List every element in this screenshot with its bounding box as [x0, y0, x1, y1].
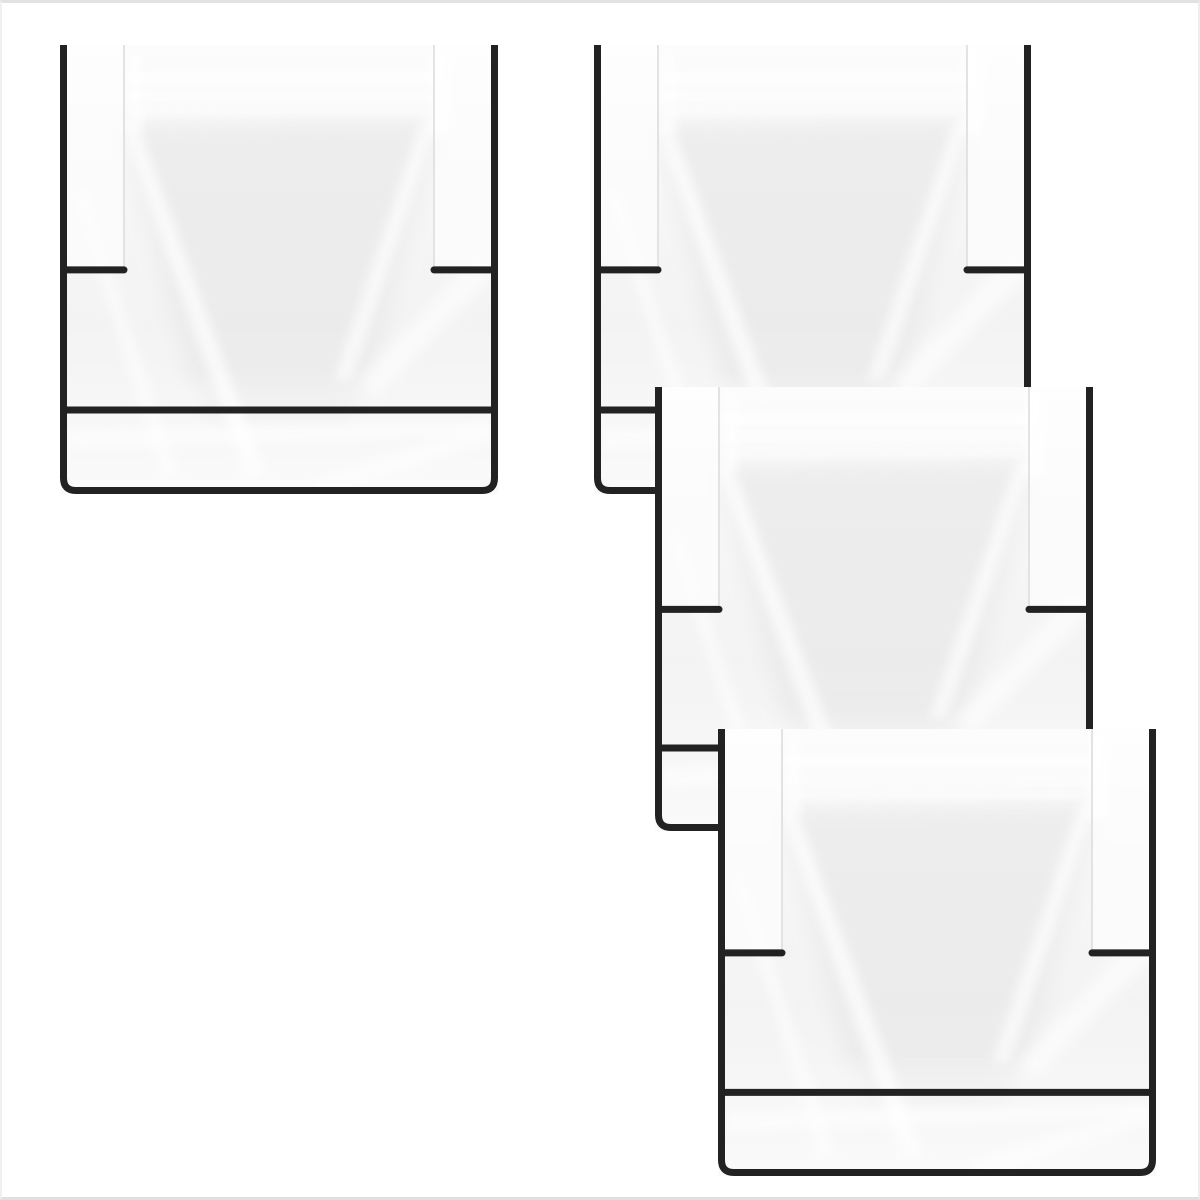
clear-bag-top-left — [60, 45, 498, 494]
clear-bag-bottom-right — [718, 729, 1156, 1176]
product-photo-canvas — [0, 0, 1200, 1200]
bag-graphic — [718, 729, 1156, 1176]
bag-graphic — [60, 45, 498, 494]
